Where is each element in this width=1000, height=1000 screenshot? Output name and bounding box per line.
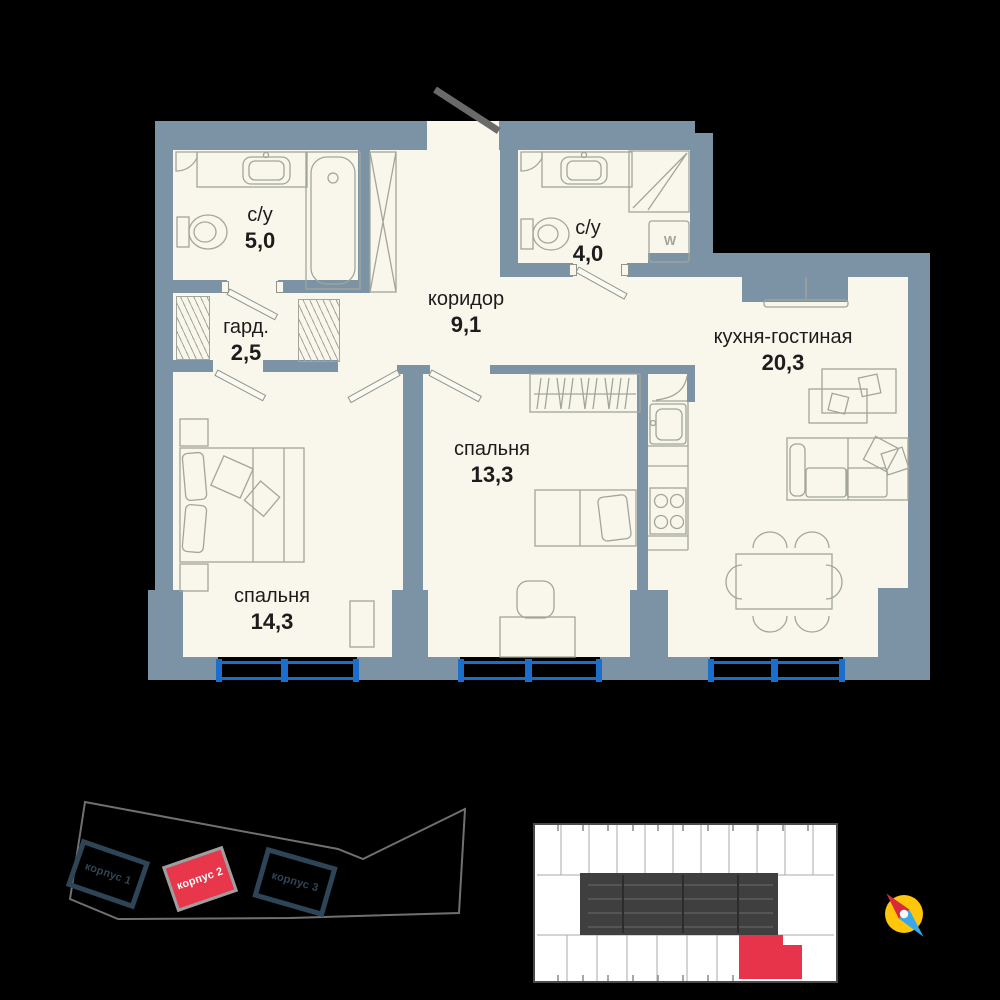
closet-hatch	[298, 299, 340, 362]
wall	[499, 121, 695, 150]
building-label: корпус 1	[83, 860, 132, 887]
wall	[500, 147, 518, 263]
wall	[648, 253, 930, 277]
compass-icon	[874, 884, 936, 946]
wall	[357, 657, 460, 680]
room-area: 2,5	[223, 339, 269, 366]
core-block	[580, 873, 778, 935]
door-jamb	[621, 264, 629, 276]
wall	[500, 263, 573, 277]
apartment-plan-page: с/у 5,0 гард. 2,5 коридор 9,1 с/у 4,0 ку…	[0, 0, 1000, 1000]
wall	[600, 657, 710, 680]
building-label: корпус 3	[270, 870, 320, 895]
room-area: 9,1	[428, 311, 504, 338]
room-label-bathroom-1: с/у 5,0	[245, 204, 276, 254]
wall	[630, 590, 668, 657]
room-label-wardrobe: гард. 2,5	[223, 316, 269, 366]
room-label-bedroom-2: спальня 14,3	[234, 585, 310, 635]
wall	[403, 374, 423, 590]
door-jamb	[221, 281, 229, 293]
wall	[637, 365, 648, 590]
floor-area	[155, 150, 695, 657]
building-label: корпус 2	[175, 865, 224, 892]
wall	[687, 365, 695, 402]
wall	[155, 121, 427, 150]
window	[218, 661, 357, 680]
wall	[843, 657, 930, 680]
room-area: 5,0	[245, 227, 276, 254]
room-name: с/у	[245, 204, 276, 227]
door-jamb	[276, 281, 284, 293]
compass-pivot	[900, 910, 908, 918]
wall	[278, 280, 370, 293]
room-name: спальня	[234, 585, 310, 608]
wall	[358, 150, 370, 293]
wall	[690, 133, 713, 253]
washer-label: W	[664, 233, 676, 248]
building-section-plan	[533, 823, 838, 983]
wall	[490, 365, 637, 374]
room-name: кухня-гостиная	[714, 326, 853, 349]
window	[710, 661, 843, 680]
room-name: коридор	[428, 288, 504, 311]
room-area: 14,3	[234, 608, 310, 635]
wall	[148, 657, 218, 680]
room-name: с/у	[573, 217, 604, 240]
wall	[155, 280, 227, 293]
room-area: 13,3	[454, 461, 530, 488]
room-label-bedroom-1: спальня 13,3	[454, 438, 530, 488]
wall	[908, 253, 930, 588]
wall	[155, 150, 173, 590]
room-label-corridor: коридор 9,1	[428, 288, 504, 338]
wall	[742, 277, 848, 302]
room-name: гард.	[223, 316, 269, 339]
room-label-kitchen-living: кухня-гостиная 20,3	[714, 326, 853, 376]
room-area: 4,0	[573, 240, 604, 267]
window	[460, 661, 600, 680]
room-area: 20,3	[714, 349, 853, 376]
room-label-bathroom-2: с/у 4,0	[573, 217, 604, 267]
wall	[173, 360, 213, 372]
room-name: спальня	[454, 438, 530, 461]
wall	[392, 590, 428, 657]
wall	[878, 588, 930, 657]
wall	[397, 365, 430, 374]
wall	[148, 590, 183, 657]
closet-hatch	[176, 296, 210, 360]
